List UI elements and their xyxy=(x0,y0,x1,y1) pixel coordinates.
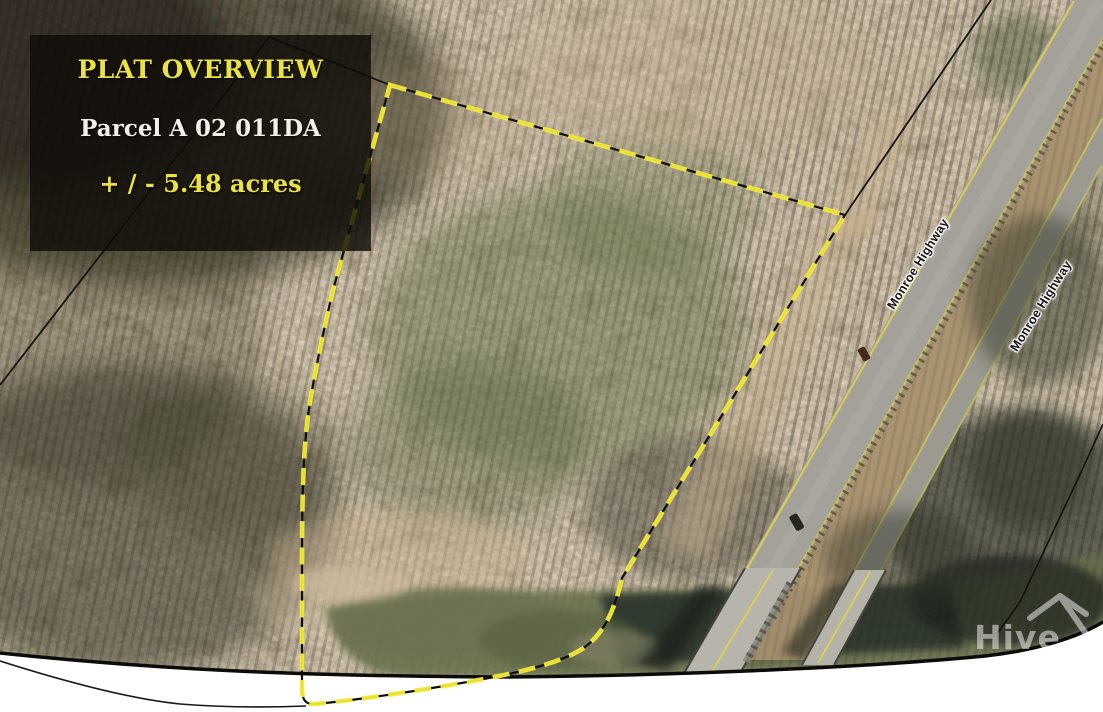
plat-info-panel: PLAT OVERVIEW Parcel A 02 011DA + / - 5.… xyxy=(30,35,371,251)
parcel-id-label: Parcel A 02 011DA xyxy=(30,115,371,142)
plat-title: PLAT OVERVIEW xyxy=(30,55,371,84)
monroe-highway-roads xyxy=(638,0,1103,712)
plat-overview-image: PLAT OVERVIEW Parcel A 02 011DA + / - 5.… xyxy=(0,0,1103,712)
acreage-label: + / - 5.48 acres xyxy=(30,169,371,198)
